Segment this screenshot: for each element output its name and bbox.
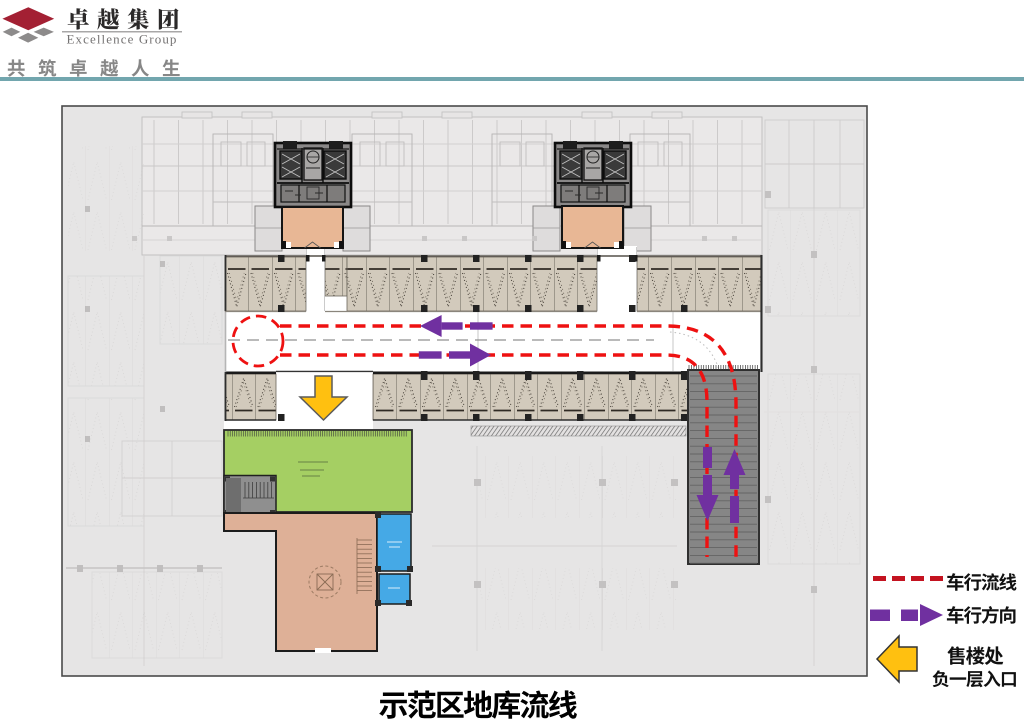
svg-text:Excellence Group: Excellence Group xyxy=(66,32,177,47)
